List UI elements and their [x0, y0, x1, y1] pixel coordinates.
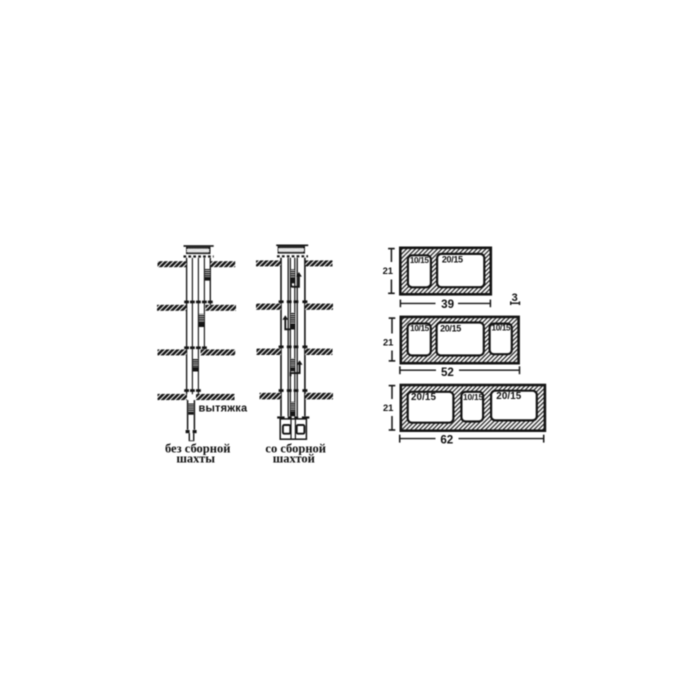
svg-text:20/15: 20/15 [442, 255, 463, 265]
svg-text:21: 21 [383, 337, 393, 348]
svg-text:62: 62 [440, 433, 453, 446]
svg-text:52: 52 [441, 366, 454, 379]
svg-text:3: 3 [512, 292, 518, 304]
svg-text:10/15: 10/15 [492, 324, 512, 333]
svg-text:39: 39 [441, 298, 454, 311]
svg-text:вытяжка: вытяжка [199, 403, 248, 415]
svg-text:20/15: 20/15 [411, 392, 436, 403]
svg-text:21: 21 [383, 265, 393, 276]
svg-text:10/15: 10/15 [410, 256, 430, 265]
svg-text:20/15: 20/15 [440, 323, 461, 333]
svg-text:шахты: шахты [176, 451, 215, 465]
svg-text:10/15: 10/15 [410, 324, 430, 333]
svg-text:20/15: 20/15 [496, 391, 521, 402]
svg-text:10/15: 10/15 [463, 392, 484, 402]
svg-text:21: 21 [383, 402, 393, 413]
svg-text:шахтой: шахтой [273, 451, 315, 465]
